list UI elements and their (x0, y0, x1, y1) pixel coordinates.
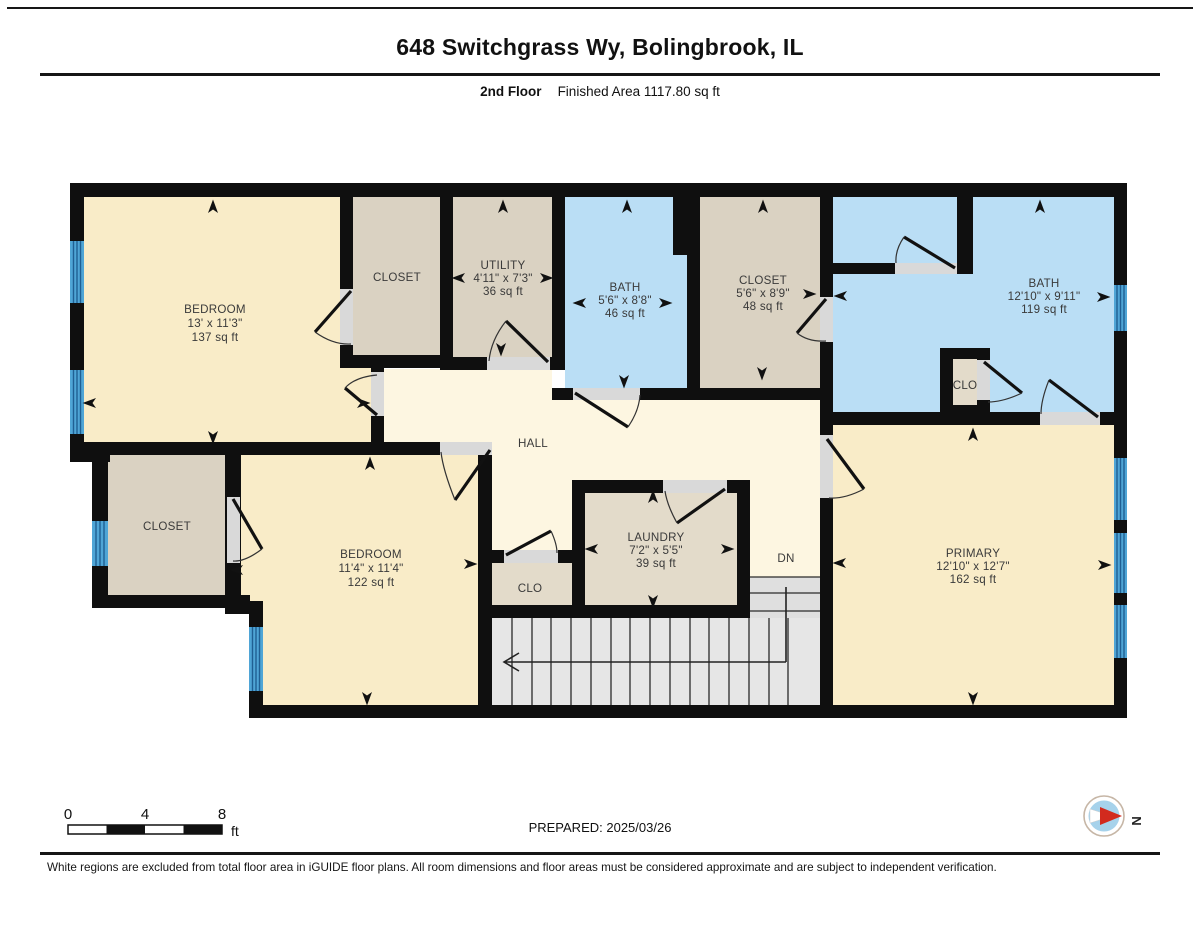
wall-segment (440, 197, 453, 368)
door-sill (663, 480, 727, 493)
wall-segment (977, 348, 990, 360)
closet-primary-dims: 5'6" x 8'9" (736, 287, 789, 300)
utility-dims: 4'11" x 7'3" (473, 272, 532, 285)
prepared-date: PREPARED: 2025/03/26 (529, 820, 672, 835)
floorplan-drawing: BEDROOM 13' x 11'3" 137 sq ft CLOSET UTI… (0, 150, 1200, 855)
closet-primary-name: CLOSET (739, 274, 787, 287)
scale-bar-segment (184, 825, 223, 834)
wall-segment (957, 183, 973, 274)
disclaimer-text: White regions are excluded from total fl… (47, 861, 1147, 874)
floorplan-page: 648 Switchgrass Wy, Bolingbrook, IL 2nd … (0, 0, 1200, 927)
closet-primary-area: 48 sq ft (743, 300, 784, 313)
bath2-dims: 5'6" x 8'8" (598, 294, 651, 307)
stairs-dn-label: DN (777, 552, 794, 565)
bedroom1-area: 137 sq ft (192, 331, 239, 344)
window (249, 627, 263, 691)
scale-unit: ft (231, 823, 239, 839)
wall-segment (737, 480, 750, 618)
floor-label: 2nd Floor (480, 84, 542, 99)
utility-name: UTILITY (481, 259, 526, 272)
compass-north-label: N (1129, 816, 1144, 825)
door-sill (1040, 412, 1100, 425)
wall-segment (820, 183, 833, 297)
hall-name: HALL (518, 437, 548, 450)
window (1114, 533, 1127, 593)
compass: N (1084, 796, 1144, 836)
wall-segment (478, 455, 492, 718)
scale-tick-4: 4 (141, 806, 149, 823)
scale-tick-0: 0 (64, 806, 72, 823)
closet-top-name: CLOSET (373, 271, 421, 284)
bath2-area: 46 sq ft (605, 307, 646, 320)
top-border-line (7, 7, 1193, 9)
wall-segment (84, 442, 492, 455)
window (1114, 458, 1127, 520)
floor-subtitle: 2nd FloorFinished Area 1117.80 sq ft (0, 84, 1200, 99)
window (1114, 285, 1127, 331)
scale-tick-8: 8 (218, 806, 226, 823)
primary-name: PRIMARY (946, 547, 1000, 560)
utility-area: 36 sq ft (483, 285, 524, 298)
page-title: 648 Switchgrass Wy, Bolingbrook, IL (0, 34, 1200, 61)
finished-area-label: Finished Area 1117.80 sq ft (558, 84, 720, 99)
wall-segment (572, 480, 585, 618)
wall-segment (249, 705, 1127, 718)
clo-hall-name: CLO (518, 582, 543, 595)
closet-left-name: CLOSET (143, 520, 191, 533)
title-divider (40, 73, 1160, 76)
primary-dims: 12'10" x 12'7" (936, 560, 1010, 573)
door-sill (487, 357, 550, 370)
window (70, 241, 84, 303)
bedroom2-area: 122 sq ft (348, 576, 395, 589)
scale-bar: 0 4 8 ft (64, 806, 239, 839)
window (70, 370, 84, 434)
wall-segment (340, 355, 453, 368)
laundry-area: 39 sq ft (636, 557, 677, 570)
bath-primary-name: BATH (1028, 277, 1059, 290)
wall-segment (687, 255, 700, 400)
scale-bar-segment (107, 825, 146, 834)
wall-segment (673, 183, 700, 255)
laundry-name: LAUNDRY (628, 531, 685, 544)
primary-area: 162 sq ft (950, 573, 997, 586)
bedroom1-dims: 13' x 11'3" (188, 317, 243, 330)
wall-segment (552, 197, 565, 370)
wall-segment (340, 197, 353, 289)
bath-primary-area: 119 sq ft (1021, 303, 1067, 316)
wall-segment (820, 498, 833, 705)
clo-bath-name: CLO (953, 379, 978, 392)
window (1114, 605, 1127, 658)
bedroom2-dims: 11'4" x 11'4" (338, 562, 403, 575)
wall-segment (478, 605, 750, 618)
window (92, 521, 108, 566)
bath-primary-dims: 12'10" x 9'11" (1008, 290, 1081, 303)
bath2-name: BATH (609, 281, 640, 294)
footer-divider (40, 852, 1160, 855)
door-sill (371, 372, 384, 416)
wall-segment (687, 388, 833, 400)
bedroom2-name: BEDROOM (340, 548, 402, 561)
bedroom1-name: BEDROOM (184, 303, 246, 316)
door-sill (440, 442, 492, 455)
laundry-dims: 7'2" x 5'5" (629, 544, 682, 557)
